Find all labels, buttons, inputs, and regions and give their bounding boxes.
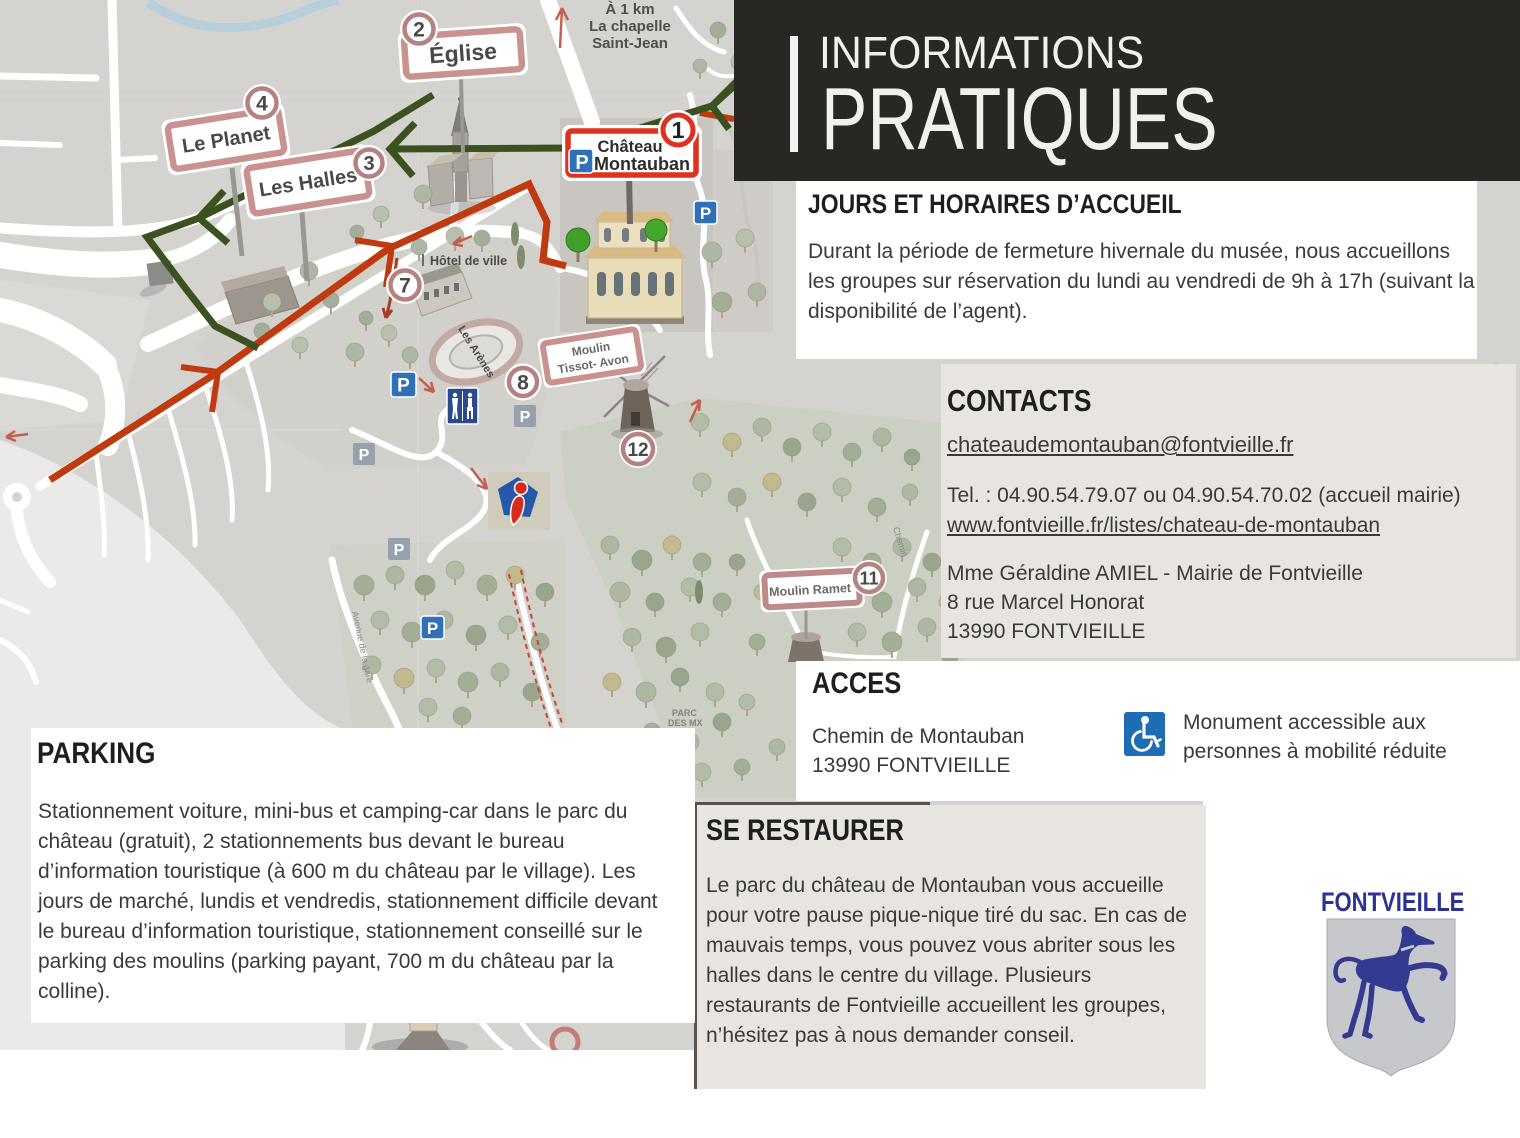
svg-text:Montauban: Montauban	[594, 154, 690, 174]
svg-text:P: P	[700, 204, 711, 223]
svg-text:11: 11	[859, 569, 878, 589]
svg-text:Saint-Jean: Saint-Jean	[592, 35, 668, 52]
svg-text:Hôtel de ville: Hôtel de ville	[430, 254, 507, 268]
svg-text:3: 3	[363, 153, 374, 175]
svg-text:DES MX: DES MX	[668, 718, 703, 728]
svg-text:P: P	[359, 447, 370, 464]
svg-text:P: P	[520, 409, 531, 426]
svg-text:La chapelle: La chapelle	[589, 18, 671, 35]
svg-text:4: 4	[256, 93, 268, 116]
svg-text:P: P	[394, 542, 405, 559]
svg-text:2: 2	[413, 19, 425, 42]
svg-text:P: P	[427, 619, 438, 638]
svg-text:Église: Église	[428, 37, 497, 69]
svg-text:8: 8	[517, 372, 529, 395]
svg-text:À 1 km: À 1 km	[605, 1, 654, 18]
svg-text:P: P	[397, 376, 410, 397]
svg-text:12: 12	[627, 440, 648, 461]
svg-text:P: P	[575, 152, 588, 174]
svg-text:PARC: PARC	[672, 708, 697, 718]
svg-text:7: 7	[399, 275, 411, 298]
svg-text:1: 1	[672, 117, 685, 143]
